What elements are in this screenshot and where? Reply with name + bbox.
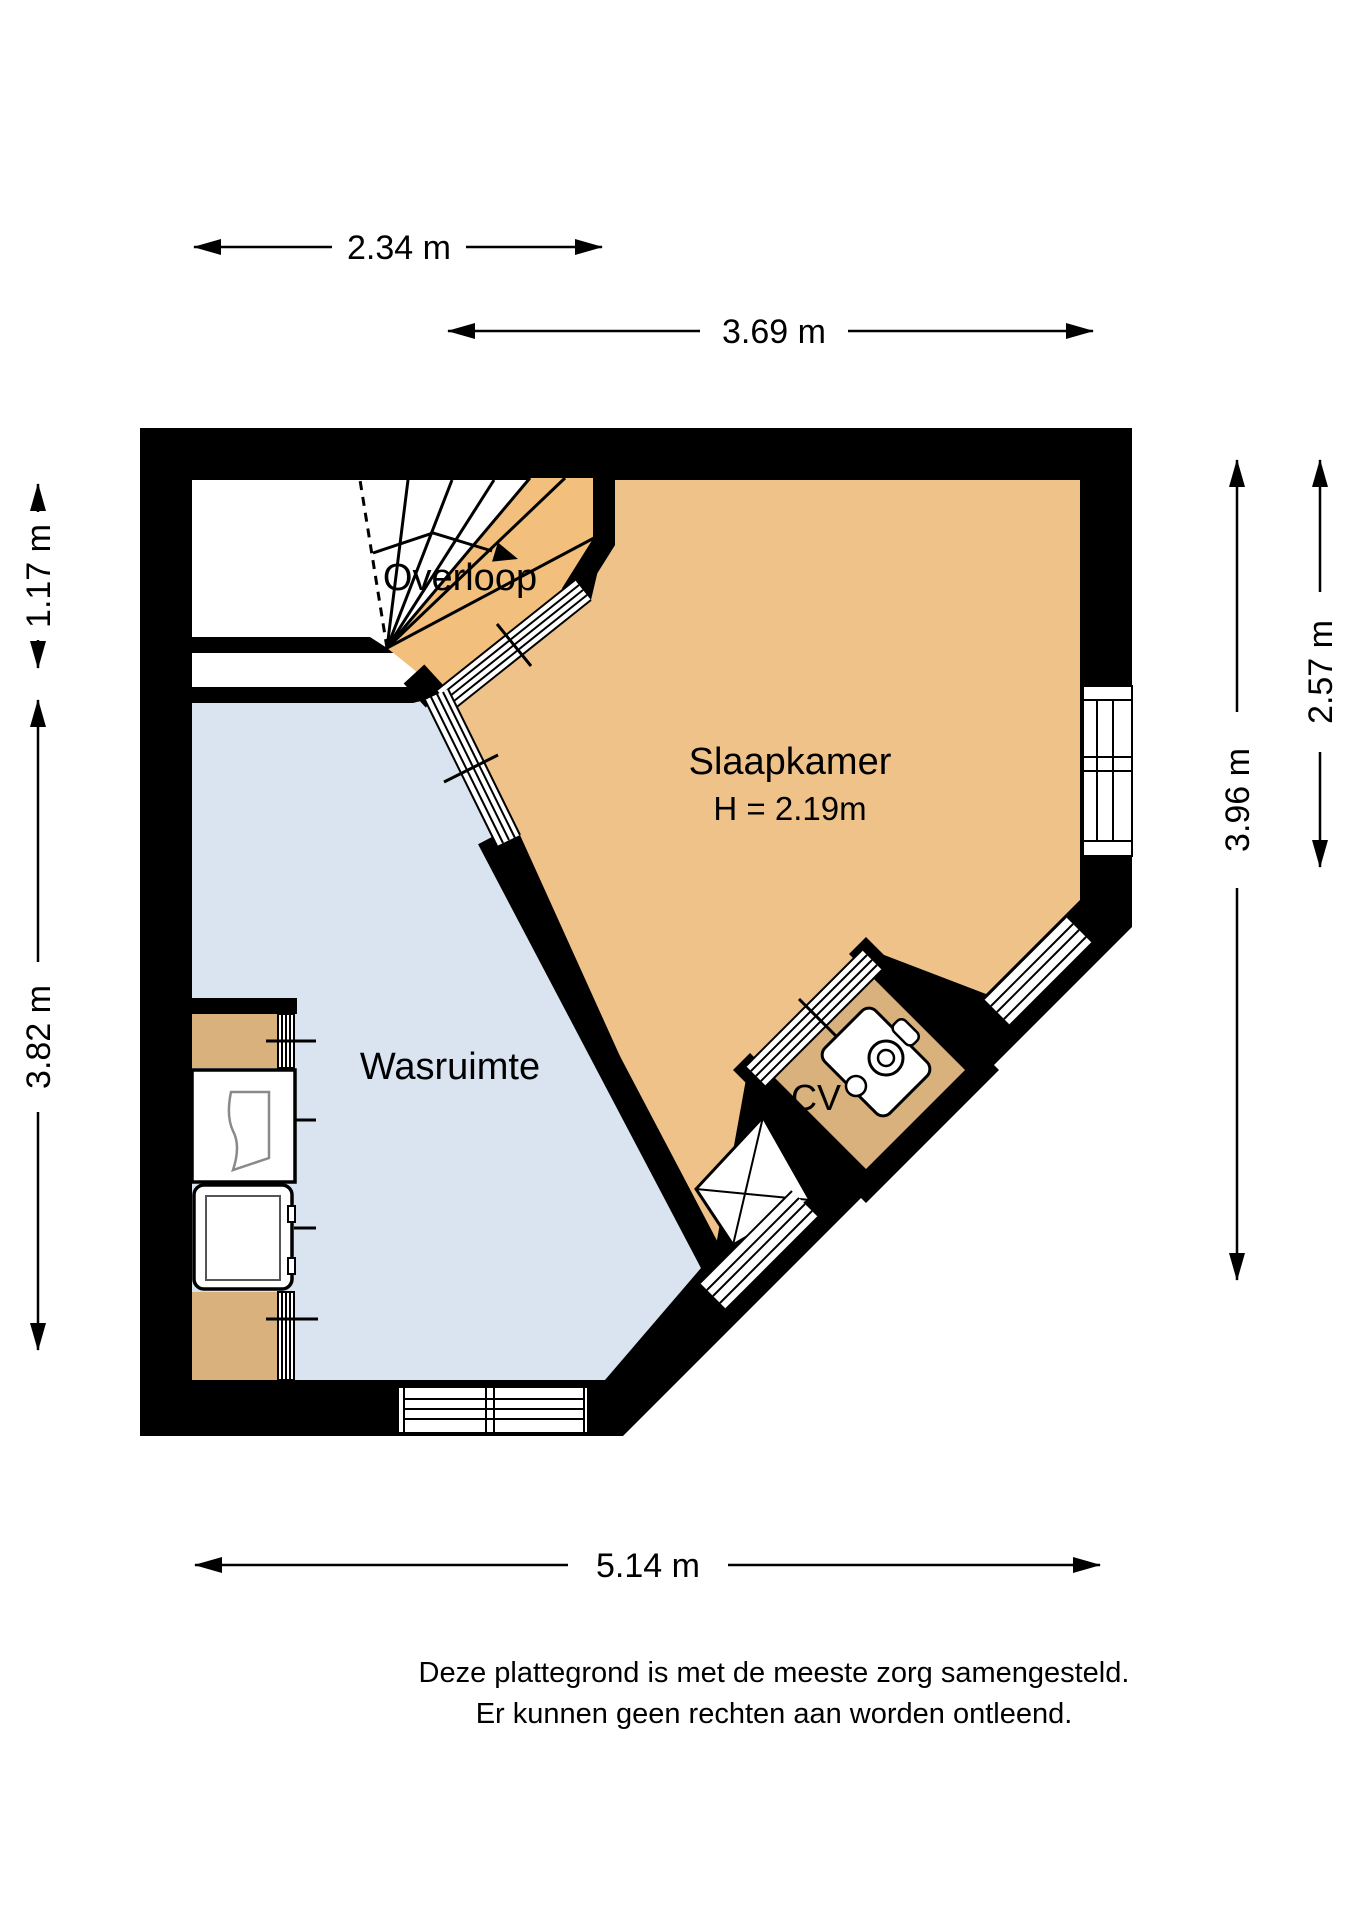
window-right-wall bbox=[1083, 686, 1132, 856]
dimension-top-stairs: 2.34 m bbox=[194, 229, 602, 267]
disclaimer-line-1: Deze plattegrond is met de meeste zorg s… bbox=[419, 1657, 1130, 1689]
floorplan-drawing: Overloop Slaapkamer H = 2.19m Wasruimte … bbox=[0, 0, 1358, 1920]
dimension-label: 3.82 m bbox=[20, 985, 58, 1089]
dimension-label: 5.14 m bbox=[596, 1547, 700, 1585]
void-strip bbox=[192, 653, 427, 687]
overloop-label: Overloop bbox=[383, 557, 537, 599]
counter-stub-wall bbox=[192, 998, 297, 1014]
door-post-wall bbox=[414, 674, 436, 698]
dimension-right-total: 3.96 m bbox=[1219, 460, 1257, 1280]
slaapkamer-label: Slaapkamer bbox=[689, 741, 892, 783]
dimension-top-bedroom: 3.69 m bbox=[448, 313, 1093, 351]
dimension-label: 2.34 m bbox=[347, 229, 451, 267]
dimension-right-bedroom: 2.57 m bbox=[1302, 460, 1340, 867]
counter-top bbox=[192, 1014, 278, 1068]
slaapkamer-height-label: H = 2.19m bbox=[713, 790, 866, 827]
floorplan-page: Overloop Slaapkamer H = 2.19m Wasruimte … bbox=[0, 0, 1358, 1920]
cv-label: CV bbox=[791, 1077, 841, 1118]
dimension-label: 2.57 m bbox=[1302, 620, 1340, 724]
dimension-left-laundry: 3.82 m bbox=[20, 700, 58, 1350]
washing-machine-icon bbox=[194, 1185, 295, 1289]
dimension-label: 3.96 m bbox=[1219, 748, 1257, 852]
radiator-icon bbox=[278, 1292, 294, 1380]
dimension-label: 1.17 m bbox=[20, 524, 58, 628]
disclaimer-line-2: Er kunnen geen rechten aan worden ontlee… bbox=[476, 1698, 1073, 1730]
sink-icon bbox=[192, 1070, 295, 1182]
counter-bottom bbox=[192, 1292, 278, 1380]
dimension-left-landing: 1.17 m bbox=[20, 484, 58, 668]
window-bottom-wall bbox=[398, 1387, 588, 1433]
dimension-bottom-total: 5.14 m bbox=[195, 1547, 1100, 1585]
wasruimte-label: Wasruimte bbox=[360, 1046, 540, 1088]
dimension-label: 3.69 m bbox=[722, 313, 826, 351]
